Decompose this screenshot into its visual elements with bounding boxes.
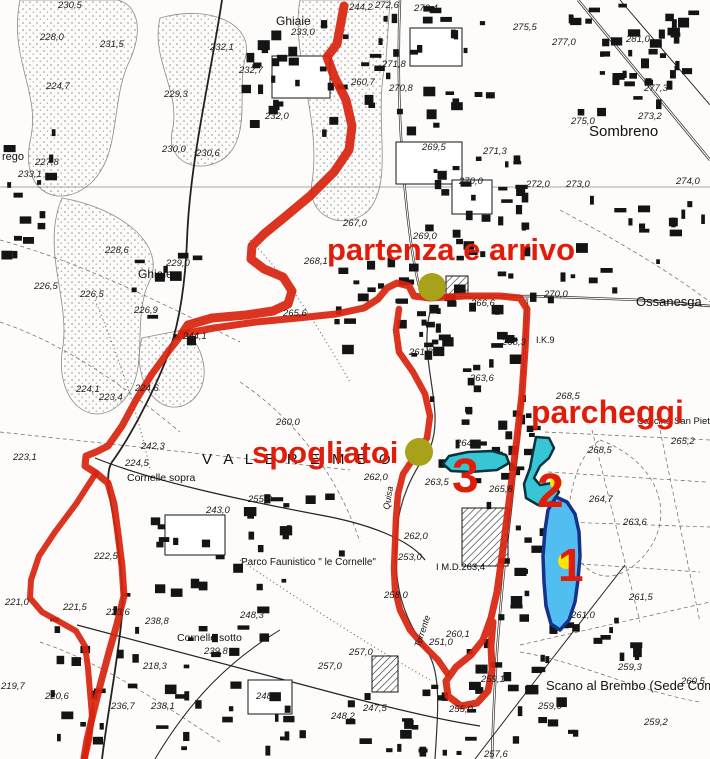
building — [660, 53, 666, 58]
building — [244, 507, 257, 516]
building — [402, 718, 413, 722]
building — [688, 11, 699, 16]
building — [285, 706, 291, 713]
building — [635, 652, 639, 660]
building — [541, 655, 545, 662]
building — [57, 734, 61, 741]
building — [614, 618, 619, 624]
building — [423, 690, 431, 697]
building — [576, 243, 588, 253]
building — [498, 614, 504, 620]
building — [518, 706, 523, 716]
elevation-label: 247,5 — [362, 703, 387, 714]
elevation-label: 227,8 — [34, 157, 59, 168]
building — [437, 308, 441, 314]
building — [277, 55, 287, 62]
elevation-label: 271,3 — [482, 146, 507, 157]
building — [61, 712, 73, 720]
building — [410, 50, 418, 55]
building — [361, 62, 369, 66]
spogliatoi-dot — [405, 438, 433, 466]
building — [585, 19, 592, 24]
elevation-label: 224,6 — [134, 383, 159, 394]
elevation-label: 268,3 — [501, 337, 526, 348]
building — [238, 625, 250, 629]
building — [597, 108, 606, 116]
elevation-label: 232,1 — [209, 42, 234, 53]
building — [184, 665, 190, 669]
building — [516, 526, 521, 531]
elevation-label: 255,0 — [247, 494, 272, 505]
place-label: I M.D.263,4 — [436, 562, 485, 573]
building — [257, 584, 263, 591]
building — [14, 236, 22, 241]
building — [55, 626, 61, 633]
building — [181, 746, 187, 750]
building — [489, 359, 494, 367]
building — [447, 301, 456, 307]
building — [250, 120, 260, 128]
elevation-label: 261,8 — [408, 347, 433, 358]
building — [397, 744, 401, 752]
building — [397, 299, 408, 304]
building — [498, 187, 507, 191]
building — [397, 109, 403, 115]
building — [222, 717, 233, 723]
place-label: Cornelle sopra — [127, 472, 195, 484]
elevation-label: 265,6 — [488, 484, 513, 495]
building — [628, 50, 632, 57]
elevation-label: 274,0 — [675, 176, 700, 187]
building — [486, 92, 495, 98]
building — [417, 311, 426, 316]
building — [159, 537, 170, 542]
building — [384, 16, 388, 22]
building — [117, 650, 124, 659]
building — [670, 70, 676, 78]
building — [289, 58, 299, 66]
building — [628, 218, 632, 225]
building — [620, 653, 625, 661]
building — [325, 494, 335, 501]
building — [229, 706, 233, 711]
building — [156, 542, 163, 548]
building — [659, 30, 665, 39]
elevation-label: 223,4 — [98, 392, 123, 403]
building — [463, 368, 472, 372]
building — [482, 215, 491, 222]
elevation-label: 281,0 — [625, 34, 650, 45]
elevation-label: 219,7 — [0, 681, 25, 692]
building — [320, 67, 327, 72]
building — [594, 638, 603, 644]
building — [529, 433, 535, 437]
building — [14, 193, 23, 198]
building — [466, 211, 473, 221]
building — [649, 49, 658, 55]
building — [533, 667, 546, 672]
building — [165, 685, 177, 695]
building — [601, 51, 611, 56]
building — [191, 579, 199, 589]
building — [480, 21, 485, 25]
building — [436, 324, 441, 333]
building — [393, 49, 399, 57]
building — [501, 199, 513, 203]
building — [524, 537, 531, 542]
elevation-label: 238,1 — [150, 701, 175, 712]
elevation-label: 268,5 — [587, 445, 612, 456]
building — [80, 722, 86, 727]
building — [135, 627, 139, 634]
building — [438, 171, 447, 180]
building — [20, 216, 32, 223]
place-label: Ghiaie — [138, 267, 173, 281]
building — [285, 731, 290, 740]
building — [682, 68, 692, 74]
building — [258, 40, 270, 50]
elevation-label: 264,7 — [588, 494, 613, 505]
building — [656, 99, 662, 109]
building — [656, 259, 660, 264]
place-label: I.K.9 — [536, 335, 555, 345]
annotation-partenza-e-arrivo: partenza e arrivo — [327, 232, 575, 267]
building — [571, 274, 576, 278]
map-canvas: 230,5228,0231,5232,1224,7229,3230,0230,6… — [0, 0, 710, 759]
elevation-label: 243,0 — [205, 505, 230, 516]
building — [687, 201, 692, 207]
building — [498, 421, 507, 430]
building — [514, 155, 521, 163]
building — [370, 54, 382, 58]
building — [510, 605, 522, 609]
elevation-label: 265,6 — [282, 308, 307, 319]
building — [93, 737, 103, 745]
building — [306, 495, 316, 504]
building — [282, 579, 287, 583]
building — [158, 524, 165, 529]
elevation-label: 273,2 — [637, 111, 662, 122]
building — [271, 497, 283, 501]
elevation-label: 259,2 — [643, 717, 668, 728]
building — [343, 34, 349, 39]
building — [511, 596, 522, 605]
building — [379, 38, 383, 45]
building — [475, 92, 483, 97]
building — [260, 633, 270, 641]
building — [639, 229, 649, 233]
elevation-label: 265,2 — [670, 436, 695, 447]
elevation-label: 221,0 — [4, 597, 29, 608]
place-label: Ghiaie — [276, 14, 311, 28]
building — [453, 98, 460, 104]
building — [412, 725, 419, 730]
building — [639, 224, 645, 229]
building — [601, 268, 613, 273]
building — [589, 8, 600, 13]
elevation-label: 253,0 — [397, 552, 422, 563]
elevation-label: 232,0 — [264, 111, 289, 122]
building — [433, 347, 444, 356]
building — [392, 14, 398, 23]
elevation-label: 222,5 — [93, 551, 118, 562]
elevation-label: 269,5 — [421, 142, 446, 153]
elevation-label: 273,0 — [565, 179, 590, 190]
building — [265, 746, 270, 756]
annotation-parcheggi: parcheggi — [531, 394, 684, 430]
building — [465, 737, 477, 741]
building — [386, 748, 392, 752]
building — [426, 322, 435, 328]
elevation-label: 226,5 — [33, 281, 58, 292]
building — [451, 30, 456, 39]
building — [422, 320, 427, 326]
building — [193, 256, 203, 261]
elevation-label: 260,0 — [275, 417, 300, 428]
elevation-label: 259,3 — [617, 662, 642, 673]
building — [433, 123, 439, 128]
building — [386, 73, 390, 80]
elevation-label: 244,2 — [348, 2, 373, 13]
building — [548, 719, 558, 726]
elevation-label: 272,6 — [374, 0, 399, 11]
building — [561, 272, 566, 281]
building — [288, 47, 297, 56]
place-label: rego — [2, 151, 24, 163]
place-label: Sombreno — [589, 123, 658, 140]
building — [508, 273, 513, 278]
elevation-label: 263,5 — [424, 477, 449, 488]
building — [38, 223, 46, 229]
building — [600, 71, 605, 75]
building — [545, 656, 549, 663]
building — [7, 182, 11, 188]
building — [624, 81, 635, 86]
building — [283, 716, 294, 722]
building — [669, 218, 678, 227]
elevation-label: 218,3 — [142, 661, 167, 672]
building — [440, 17, 452, 22]
elevation-label: 244,1 — [182, 331, 207, 342]
building — [358, 294, 369, 302]
elevation-label: 239,8 — [203, 646, 228, 657]
start-finish-dot — [418, 273, 446, 301]
building — [516, 188, 525, 196]
elevation-label: 259,1 — [480, 674, 505, 685]
building — [638, 206, 650, 213]
building — [671, 30, 675, 38]
elevation-label: 232,7 — [238, 65, 263, 76]
building — [258, 545, 264, 552]
building — [342, 345, 354, 354]
building — [45, 173, 57, 181]
building — [589, 278, 598, 284]
building — [471, 195, 476, 201]
building — [216, 555, 225, 560]
elevation-label: 270,0 — [543, 289, 568, 300]
building — [630, 642, 642, 648]
building — [52, 129, 56, 136]
building — [365, 693, 371, 700]
elevation-label: 263,6 — [469, 373, 494, 384]
elevation-label: 224,1 — [75, 384, 100, 395]
elevation-label: 257,0 — [317, 661, 342, 672]
elevation-label: 242,3 — [140, 441, 165, 452]
elevation-label: 223,1 — [12, 452, 37, 463]
building — [249, 532, 255, 540]
elevation-label: 248,2 — [330, 711, 355, 722]
elevation-label: 261,0 — [570, 610, 595, 621]
building — [321, 20, 327, 28]
elevation-label: 223,6 — [105, 607, 130, 618]
place-label: Scano al Brembo (Sede Comun — [546, 678, 710, 693]
building — [611, 37, 622, 45]
building — [614, 208, 626, 212]
building — [516, 205, 522, 214]
building — [487, 502, 492, 509]
building — [439, 335, 451, 341]
building — [578, 109, 585, 116]
building — [612, 287, 617, 293]
building — [274, 101, 284, 106]
elevation-label: 231,5 — [99, 39, 124, 50]
building — [322, 129, 327, 137]
topo-map: 230,5228,0231,5232,1224,7229,3230,0230,6… — [0, 0, 710, 759]
building — [612, 77, 619, 86]
building — [674, 35, 680, 44]
elevation-label: 275,5 — [512, 22, 537, 33]
building — [184, 691, 189, 700]
building — [520, 614, 530, 622]
elevation-label: 258,0 — [383, 590, 408, 601]
building — [573, 730, 578, 737]
building — [508, 685, 519, 692]
building — [283, 503, 289, 507]
building — [353, 280, 359, 284]
building — [230, 682, 241, 689]
elevation-label: 236,7 — [110, 701, 135, 712]
building — [609, 627, 613, 633]
building — [498, 216, 503, 225]
elevation-label: 272,0 — [525, 179, 550, 190]
parking-number-1: 1 — [558, 539, 584, 591]
building — [40, 211, 46, 218]
elevation-label: 248,3 — [239, 610, 264, 621]
building — [441, 189, 449, 196]
elevation-label: 251,0 — [428, 637, 453, 648]
building — [465, 407, 472, 413]
building — [407, 127, 416, 136]
building — [434, 169, 438, 173]
elevation-label: 266,6 — [470, 298, 495, 309]
elevation-label: 261,5 — [628, 592, 653, 603]
elevation-label: 230,0 — [161, 144, 186, 155]
building — [155, 584, 165, 593]
elevation-label: 255,0 — [448, 704, 473, 715]
building — [505, 161, 509, 167]
building — [400, 730, 412, 739]
elevation-label: 238,8 — [144, 616, 169, 627]
elevation-label: 220,6 — [44, 691, 69, 702]
elevation-label: 221,5 — [62, 602, 87, 613]
elevation-label: 230,5 — [57, 0, 82, 11]
elevation-label: 262,0 — [363, 472, 388, 483]
building — [530, 293, 537, 302]
elevation-label: 233,1 — [17, 169, 42, 180]
elevation-label: 230,6 — [195, 148, 220, 159]
building — [675, 66, 680, 71]
building — [514, 568, 526, 576]
building — [641, 58, 649, 68]
building — [431, 685, 438, 689]
building — [156, 725, 168, 729]
annotation-spogliatoi: spogliatoi — [252, 435, 398, 470]
elevation-label: 228,6 — [104, 245, 129, 256]
elevation-label: 233,0 — [290, 27, 315, 38]
place-label: Parco Faunistico " le Cornelle" — [241, 557, 376, 568]
building — [681, 210, 685, 219]
building — [23, 237, 34, 244]
building — [183, 732, 189, 741]
elevation-label: 260,7 — [350, 77, 375, 88]
elevation-label: 224,5 — [124, 458, 149, 469]
building — [271, 76, 275, 83]
building — [199, 626, 208, 631]
elevation-label: 271,8 — [381, 59, 406, 70]
building — [525, 591, 530, 597]
building — [280, 526, 292, 535]
building — [334, 319, 339, 324]
building — [247, 53, 255, 63]
building — [430, 396, 434, 402]
building — [242, 85, 252, 93]
building — [329, 117, 338, 125]
building — [37, 180, 41, 185]
building — [498, 272, 507, 277]
elevation-label: 270,0 — [458, 176, 483, 187]
building — [360, 738, 372, 744]
elevation-label: 264,8 — [455, 438, 480, 449]
building — [202, 540, 210, 548]
building — [446, 91, 455, 95]
building — [670, 230, 682, 237]
building — [151, 517, 160, 525]
building — [258, 85, 263, 95]
building — [419, 332, 423, 337]
elevation-label: 257,0 — [348, 647, 373, 658]
building — [570, 18, 581, 25]
building — [526, 685, 538, 695]
building — [195, 700, 201, 709]
building — [199, 582, 208, 591]
building — [505, 431, 512, 439]
building — [348, 700, 355, 707]
building — [629, 73, 637, 79]
place-label: Ossanesga — [636, 294, 703, 309]
building — [522, 223, 526, 231]
building — [173, 538, 178, 545]
building — [538, 717, 547, 723]
building — [618, 4, 627, 8]
parking-number-2: 2 — [537, 465, 564, 518]
building — [701, 215, 705, 225]
elevation-label: 268,1 — [303, 256, 328, 267]
elevation-label: 272,4 — [413, 3, 438, 14]
elevation-label: 277,0 — [551, 37, 576, 48]
elevation-label: 257,6 — [483, 749, 508, 759]
building — [473, 365, 480, 371]
building — [344, 318, 356, 324]
